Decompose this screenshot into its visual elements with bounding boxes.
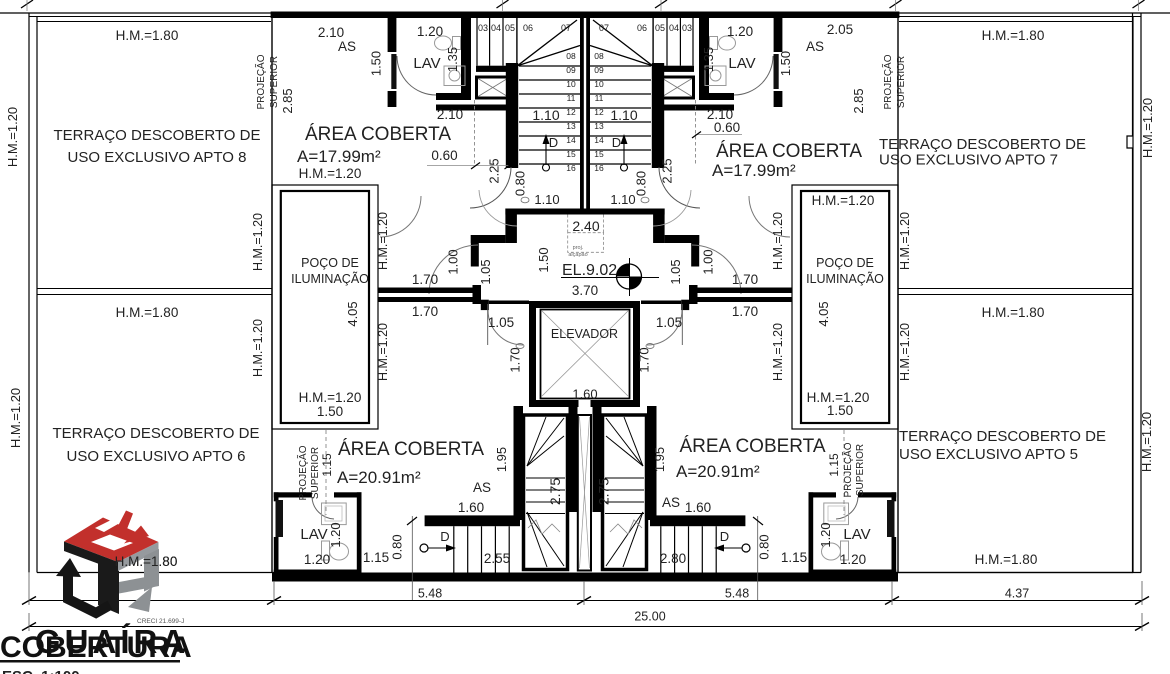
svg-text:0.80: 0.80	[513, 171, 528, 196]
svg-text:3.70: 3.70	[572, 283, 598, 298]
svg-text:ILUMINAÇÃO: ILUMINAÇÃO	[806, 272, 884, 286]
svg-text:ÁREA COBERTA: ÁREA COBERTA	[716, 141, 862, 162]
svg-text:08: 08	[566, 51, 576, 61]
svg-text:TERRAÇO DESCOBERTO DE: TERRAÇO DESCOBERTO DE	[53, 425, 260, 442]
svg-text:2.05: 2.05	[827, 22, 853, 37]
svg-text:5.48: 5.48	[725, 587, 749, 601]
svg-text:POÇO DE: POÇO DE	[816, 256, 874, 270]
svg-text:06: 06	[637, 23, 647, 33]
svg-text:LAV: LAV	[413, 55, 440, 72]
svg-text:H.M.=1.80: H.M.=1.80	[116, 28, 179, 43]
svg-text:1.70: 1.70	[412, 304, 438, 319]
svg-text:10: 10	[594, 79, 604, 89]
svg-text:H.M.=1.20: H.M.=1.20	[299, 390, 362, 405]
svg-text:H.M.=1.20: H.M.=1.20	[5, 107, 20, 167]
svg-text:1.10: 1.10	[610, 192, 635, 207]
svg-text:AS: AS	[806, 39, 824, 54]
svg-text:H.M.=1.20: H.M.=1.20	[898, 323, 912, 381]
svg-text:H.M.=1.20: H.M.=1.20	[299, 166, 362, 181]
svg-text:04: 04	[491, 23, 501, 33]
svg-text:H.M.=1.20: H.M.=1.20	[1139, 412, 1154, 472]
svg-text:1.10: 1.10	[532, 107, 559, 123]
svg-text:4.05: 4.05	[816, 301, 831, 326]
svg-text:PROJEÇÃO: PROJEÇÃO	[841, 442, 854, 497]
svg-text:2.25: 2.25	[660, 158, 675, 183]
svg-text:SUPERIOR: SUPERIOR	[855, 444, 866, 496]
svg-text:A=20.91m²: A=20.91m²	[337, 468, 421, 487]
svg-text:11: 11	[567, 93, 576, 103]
svg-text:H.M.=1.20: H.M.=1.20	[771, 212, 785, 270]
svg-text:04: 04	[669, 23, 679, 33]
svg-text:A=17.99m²: A=17.99m²	[712, 161, 796, 180]
svg-text:2.55: 2.55	[484, 551, 510, 566]
svg-text:1.15: 1.15	[320, 453, 334, 477]
svg-text:1.15: 1.15	[781, 550, 807, 565]
svg-text:0.60: 0.60	[714, 120, 740, 135]
svg-text:EL.9.02: EL.9.02	[562, 262, 617, 279]
svg-text:2.75: 2.75	[547, 478, 563, 505]
svg-text:AS: AS	[473, 480, 491, 495]
svg-text:1.95: 1.95	[494, 447, 509, 472]
svg-text:LAV: LAV	[843, 526, 870, 543]
svg-text:03: 03	[478, 23, 488, 33]
svg-text:1.50: 1.50	[827, 403, 853, 418]
svg-text:D: D	[440, 529, 449, 544]
svg-text:1.20: 1.20	[840, 552, 866, 567]
svg-text:COBERTURA: COBERTURA	[0, 631, 192, 664]
svg-text:10: 10	[566, 79, 576, 89]
svg-text:1.70: 1.70	[508, 347, 523, 372]
svg-text:2.85: 2.85	[280, 88, 295, 113]
svg-text:H.M.=1.20: H.M.=1.20	[376, 323, 390, 381]
svg-text:LAV: LAV	[300, 526, 327, 543]
svg-text:1.20: 1.20	[304, 552, 330, 567]
svg-text:LAV: LAV	[728, 55, 755, 72]
svg-text:SUPERIOR: SUPERIOR	[896, 56, 907, 108]
svg-text:2.10: 2.10	[437, 107, 463, 122]
svg-text:proj.: proj.	[573, 245, 584, 251]
svg-text:15: 15	[566, 149, 576, 159]
svg-text:15: 15	[594, 149, 604, 159]
svg-text:1.20: 1.20	[328, 522, 343, 547]
svg-text:1.05: 1.05	[656, 315, 682, 330]
svg-text:1.50: 1.50	[778, 51, 793, 76]
svg-text:H.M.=1.20: H.M.=1.20	[251, 319, 265, 377]
svg-text:H.M.=1.20: H.M.=1.20	[8, 388, 23, 448]
svg-text:A=20.91m²: A=20.91m²	[676, 462, 760, 481]
svg-text:1.05: 1.05	[668, 259, 683, 284]
svg-text:TERRAÇO DESCOBERTO DE: TERRAÇO DESCOBERTO DE	[899, 428, 1106, 445]
svg-text:1.70: 1.70	[637, 347, 652, 372]
svg-text:2.75: 2.75	[596, 478, 612, 505]
svg-text:D: D	[720, 529, 729, 544]
svg-text:11: 11	[595, 93, 604, 103]
svg-text:08: 08	[594, 51, 604, 61]
svg-text:13: 13	[566, 121, 576, 131]
svg-text:4.05: 4.05	[345, 301, 360, 326]
svg-text:2.80: 2.80	[660, 551, 686, 566]
svg-text:1.70: 1.70	[732, 272, 758, 287]
svg-text:1.20: 1.20	[727, 24, 753, 39]
svg-text:12: 12	[594, 107, 604, 117]
svg-text:1.70: 1.70	[732, 304, 758, 319]
svg-text:16: 16	[594, 163, 604, 173]
svg-text:H.M.=1.20: H.M.=1.20	[898, 212, 912, 270]
svg-text:2.85: 2.85	[851, 88, 866, 113]
svg-text:07: 07	[561, 23, 571, 33]
svg-text:ESC. 1:100: ESC. 1:100	[2, 668, 80, 674]
svg-text:USO EXCLUSIVO APTO 7: USO EXCLUSIVO APTO 7	[879, 152, 1058, 169]
svg-text:ILUMINAÇÃO: ILUMINAÇÃO	[291, 272, 369, 286]
svg-text:AS: AS	[338, 39, 356, 54]
svg-text:TERRAÇO DESCOBERTO DE: TERRAÇO DESCOBERTO DE	[879, 136, 1086, 153]
svg-text:1.00: 1.00	[701, 249, 716, 274]
svg-text:16: 16	[566, 163, 576, 173]
svg-text:1.50: 1.50	[369, 51, 384, 76]
svg-text:06: 06	[523, 23, 533, 33]
svg-text:14: 14	[566, 135, 576, 145]
svg-text:H.M.=1.20: H.M.=1.20	[376, 212, 390, 270]
svg-text:4.37: 4.37	[1005, 587, 1029, 601]
svg-text:1.50: 1.50	[536, 247, 551, 272]
svg-text:USO EXCLUSIVO APTO 8: USO EXCLUSIVO APTO 8	[68, 149, 247, 166]
svg-text:0.80: 0.80	[390, 534, 405, 559]
svg-text:1.95: 1.95	[652, 447, 667, 472]
svg-text:09: 09	[566, 65, 576, 75]
svg-text:2.40: 2.40	[572, 218, 599, 234]
svg-text:1.05: 1.05	[488, 315, 514, 330]
svg-text:SUPERIOR: SUPERIOR	[269, 56, 280, 108]
svg-text:A=17.99m²: A=17.99m²	[297, 147, 381, 166]
svg-text:USO EXCLUSIVO APTO 6: USO EXCLUSIVO APTO 6	[67, 448, 246, 465]
svg-text:03: 03	[682, 23, 692, 33]
svg-text:H.M.=1.20: H.M.=1.20	[771, 323, 785, 381]
svg-text:H.M.=1.80: H.M.=1.80	[115, 554, 178, 569]
svg-text:25.00: 25.00	[634, 610, 665, 624]
svg-text:1.20: 1.20	[818, 522, 833, 547]
svg-text:0.60: 0.60	[431, 148, 457, 163]
svg-text:1.00: 1.00	[446, 249, 461, 274]
svg-text:PROJEÇÃO: PROJEÇÃO	[296, 445, 309, 500]
svg-text:H.M.=1.80: H.M.=1.80	[116, 305, 179, 320]
svg-text:ÁREA COBERTA: ÁREA COBERTA	[679, 436, 825, 457]
svg-text:D: D	[549, 135, 558, 150]
svg-text:1.70: 1.70	[412, 272, 438, 287]
svg-text:D: D	[612, 135, 621, 150]
svg-text:1.60: 1.60	[572, 387, 597, 402]
svg-text:07: 07	[599, 23, 609, 33]
svg-text:0.80: 0.80	[634, 171, 649, 196]
svg-text:POÇO DE: POÇO DE	[301, 256, 359, 270]
svg-text:1.60: 1.60	[685, 500, 711, 515]
svg-text:14: 14	[594, 135, 604, 145]
svg-text:5.48: 5.48	[418, 587, 442, 601]
svg-text:2.10: 2.10	[318, 25, 344, 40]
svg-text:1.10: 1.10	[610, 107, 637, 123]
svg-text:ELEVADOR: ELEVADOR	[551, 327, 618, 341]
svg-text:H.M.=1.80: H.M.=1.80	[975, 552, 1038, 567]
svg-text:1.35: 1.35	[445, 47, 460, 72]
svg-text:USO EXCLUSIVO APTO 5: USO EXCLUSIVO APTO 5	[899, 446, 1078, 463]
svg-text:1.10: 1.10	[534, 192, 559, 207]
svg-text:1.60: 1.60	[458, 500, 484, 515]
svg-text:H.M.=1.20: H.M.=1.20	[812, 193, 875, 208]
svg-text:12: 12	[566, 107, 576, 117]
svg-text:0.80: 0.80	[757, 534, 772, 559]
svg-text:1.15: 1.15	[363, 550, 389, 565]
svg-text:H.M.=1.20: H.M.=1.20	[1140, 98, 1155, 158]
svg-text:2.25: 2.25	[487, 158, 502, 183]
svg-text:05: 05	[655, 23, 665, 33]
svg-text:ÁREA COBERTA: ÁREA COBERTA	[305, 124, 451, 145]
svg-text:AS: AS	[662, 495, 680, 510]
svg-text:1.15: 1.15	[827, 453, 841, 477]
svg-text:H.M.=1.20: H.M.=1.20	[251, 213, 265, 271]
svg-text:PROJEÇÃO: PROJEÇÃO	[881, 54, 894, 109]
svg-text:09: 09	[594, 65, 604, 75]
svg-text:TERRAÇO DESCOBERTO DE: TERRAÇO DESCOBERTO DE	[54, 127, 261, 144]
svg-text:1.20: 1.20	[417, 24, 443, 39]
svg-text:ÁREA COBERTA: ÁREA COBERTA	[338, 439, 484, 460]
svg-text:05: 05	[505, 23, 515, 33]
svg-text:1.05: 1.05	[478, 259, 493, 284]
svg-text:1.50: 1.50	[317, 404, 343, 419]
svg-text:13: 13	[594, 121, 604, 131]
svg-text:1.35: 1.35	[701, 47, 716, 72]
svg-text:PROJEÇÃO: PROJEÇÃO	[254, 54, 267, 109]
svg-text:H.M.=1.80: H.M.=1.80	[982, 305, 1045, 320]
svg-text:H.M.=1.80: H.M.=1.80	[982, 28, 1045, 43]
svg-text:alçapão: alçapão	[568, 252, 587, 258]
